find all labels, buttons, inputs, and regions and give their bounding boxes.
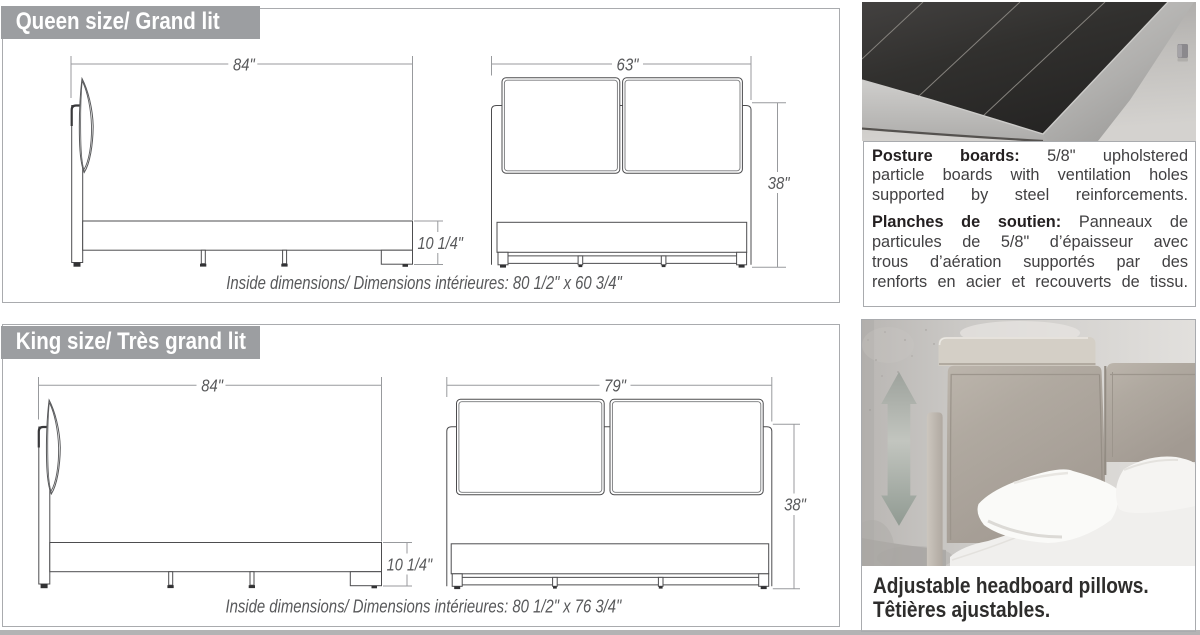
svg-text:38": 38": [768, 173, 790, 193]
svg-text:Inside dimensions/ Dimensions: Inside dimensions/ Dimensions intérieure…: [226, 273, 623, 293]
svg-text:38": 38": [784, 495, 806, 515]
svg-text:63": 63": [617, 54, 640, 74]
svg-text:84": 84": [233, 54, 255, 74]
svg-text:10 1/4": 10 1/4": [387, 555, 433, 575]
svg-text:84": 84": [201, 376, 223, 396]
svg-text:79": 79": [604, 376, 627, 396]
svg-text:10 1/4": 10 1/4": [417, 233, 463, 253]
svg-text:Inside dimensions/ Dimensions: Inside dimensions/ Dimensions intérieure…: [225, 597, 622, 617]
